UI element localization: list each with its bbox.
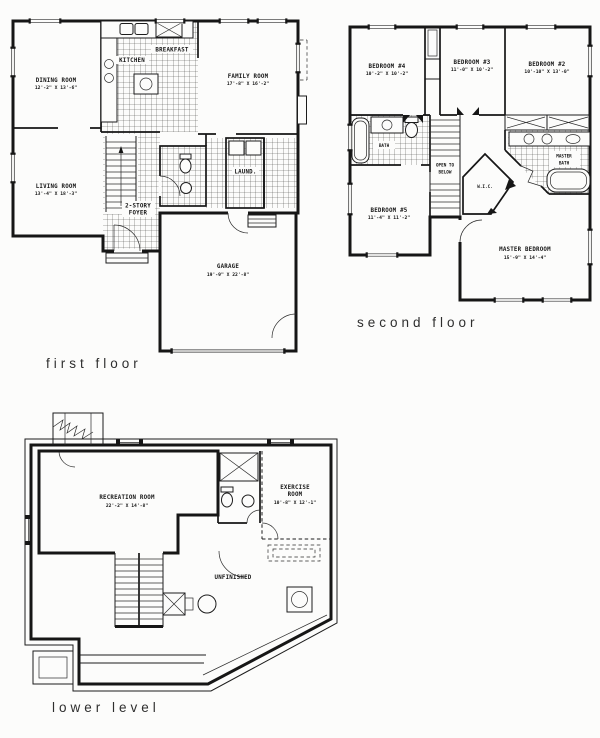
lower-level-stairs [115,553,163,628]
hall-bath-label: BATH [379,143,390,149]
door-swing [219,551,245,577]
bedroom4-dims: 10'-2" X 10'-2" [366,71,409,77]
porch-foundation [33,651,206,684]
family-room-dims: 17'-8" X 16'-2" [227,81,270,87]
laundry-label: LAUND. [234,170,256,176]
master-bedroom-label: MASTER BEDROOM [499,247,551,253]
bedroom3-label: BEDROOM #3 [454,60,491,66]
garage-dims: 19'-9" X 22'-8" [207,272,250,278]
kitchen-label: KITCHEN [119,58,145,64]
kitchen-sink-icon [135,24,148,35]
exercise-room-dims: 10'-8" X 12'-1" [274,500,317,506]
living-room-dims: 13'-4" X 18'-3" [35,191,78,197]
furnace-icon [163,593,193,615]
garage-label: GARAGE [217,264,239,270]
deck-outline [300,40,307,80]
bedroom2-label: BEDROOM #2 [529,62,566,68]
recreation-room-walls [39,451,218,553]
living-room-label: LIVING ROOM [36,184,77,190]
basement-bath [218,451,260,523]
dining-room-label: DINING ROOM [36,78,77,84]
lower-level-labels: RECREATION ROOM 22'-2" X 14'-8" EXERCISE… [99,485,316,581]
bathtub-icon [547,169,590,192]
family-room-label: FAMILY ROOM [228,74,269,80]
bedroom3-dims: 11'-0" X 10'-2" [451,67,494,73]
foundation-walls [25,439,337,691]
walk-in-closet: W.I.C. [463,154,516,214]
foyer-label-2: FOYER [129,211,148,217]
breakfast-label: BREAKFAST [155,48,189,54]
lower-level-plan: RECREATION ROOM 22'-2" X 14'-8" EXERCISE… [15,403,350,708]
unfinished-label: UNFINISHED [215,575,252,581]
stove-icon [156,23,182,38]
dryer-icon [246,141,261,155]
master-bedroom-dims: 15'-9" X 14'-4" [504,255,547,261]
second-floor-stairs: OPEN TO BELOW [430,115,460,217]
first-floor-plan: DINING ROOM 12'-2" X 13'-6" KITCHEN BREA… [8,16,308,361]
sink-icon [181,183,192,194]
exercise-room-label-1: EXERCISE [280,485,310,491]
lower-level-windows [26,440,295,546]
exercise-room-label-2: ROOM [288,492,303,498]
washer-icon [229,141,244,155]
open-below-label-1: OPEN TO [436,163,455,169]
bedroom4-label: BEDROOM #4 [369,64,406,70]
open-below-label-2: BELOW [439,170,452,176]
second-floor-title: second floor [357,315,479,330]
wic-label: W.I.C. [477,184,493,190]
kitchen-sink-icon [120,24,133,35]
water-heater-icon [198,595,216,613]
second-floor-plan: OPEN TO BELOW W.I.C. BATH [345,22,600,307]
floorplan-sheet: DINING ROOM 12'-2" X 13'-6" KITCHEN BREA… [0,0,600,738]
master-bath-label-1: MASTER [556,154,572,160]
master-bath-label-2: BATH [559,161,570,167]
bathtub-icon [352,118,369,163]
recreation-room-label: RECREATION ROOM [99,495,155,501]
lower-level-title: lower level [52,700,160,715]
sink-icon [242,495,254,507]
fireplace [298,96,307,124]
bedroom2-dims: 10'-10" X 13'-0" [524,69,569,75]
exercise-room-walls [262,451,331,561]
toilet-icon [221,487,233,507]
dining-room-dims: 12'-2" X 13'-6" [35,85,78,91]
toilet-icon [180,154,191,173]
toilet-icon [405,117,418,138]
bedroom5-label: BEDROOM #5 [371,208,408,214]
shower-icon [220,453,258,481]
sump-icon [287,587,312,612]
breakfast-table [134,74,158,94]
recreation-room-dims: 22'-2" X 14'-8" [106,503,149,509]
first-floor-title: first floor [46,356,142,371]
chimney [53,413,103,467]
foyer-label-1: 2-STORY [125,204,151,210]
bedroom5-dims: 11'-4" X 11'-2" [368,215,411,221]
